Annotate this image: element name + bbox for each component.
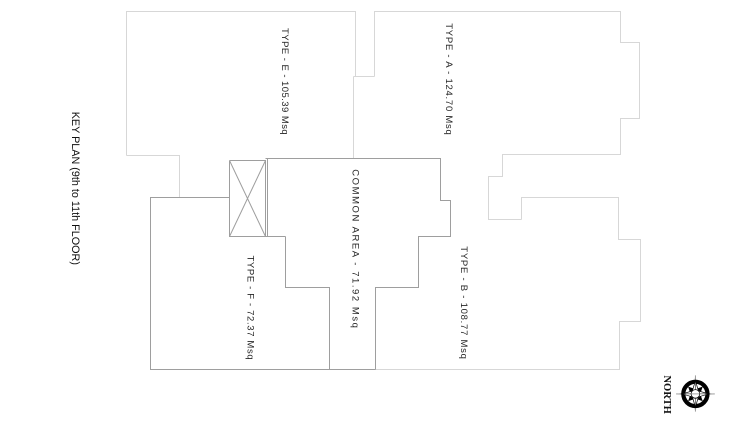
svg-text:TYPE - E - 105.39 Msq: TYPE - E - 105.39 Msq xyxy=(279,28,290,135)
svg-text:COMMON AREA - 71.92 Msq: COMMON AREA - 71.92 Msq xyxy=(350,169,361,329)
svg-text:KEY PLAN (9th to 11th FLOOR): KEY PLAN (9th to 11th FLOOR) xyxy=(69,112,81,265)
svg-text:TYPE - A - 124.70 Msq: TYPE - A - 124.70 Msq xyxy=(443,23,454,135)
svg-text:NORTH: NORTH xyxy=(661,375,672,414)
svg-text:TYPE - F - 72.37 Msq: TYPE - F - 72.37 Msq xyxy=(244,255,255,360)
svg-text:TYPE - B - 108.77 Msq: TYPE - B - 108.77 Msq xyxy=(458,246,469,359)
